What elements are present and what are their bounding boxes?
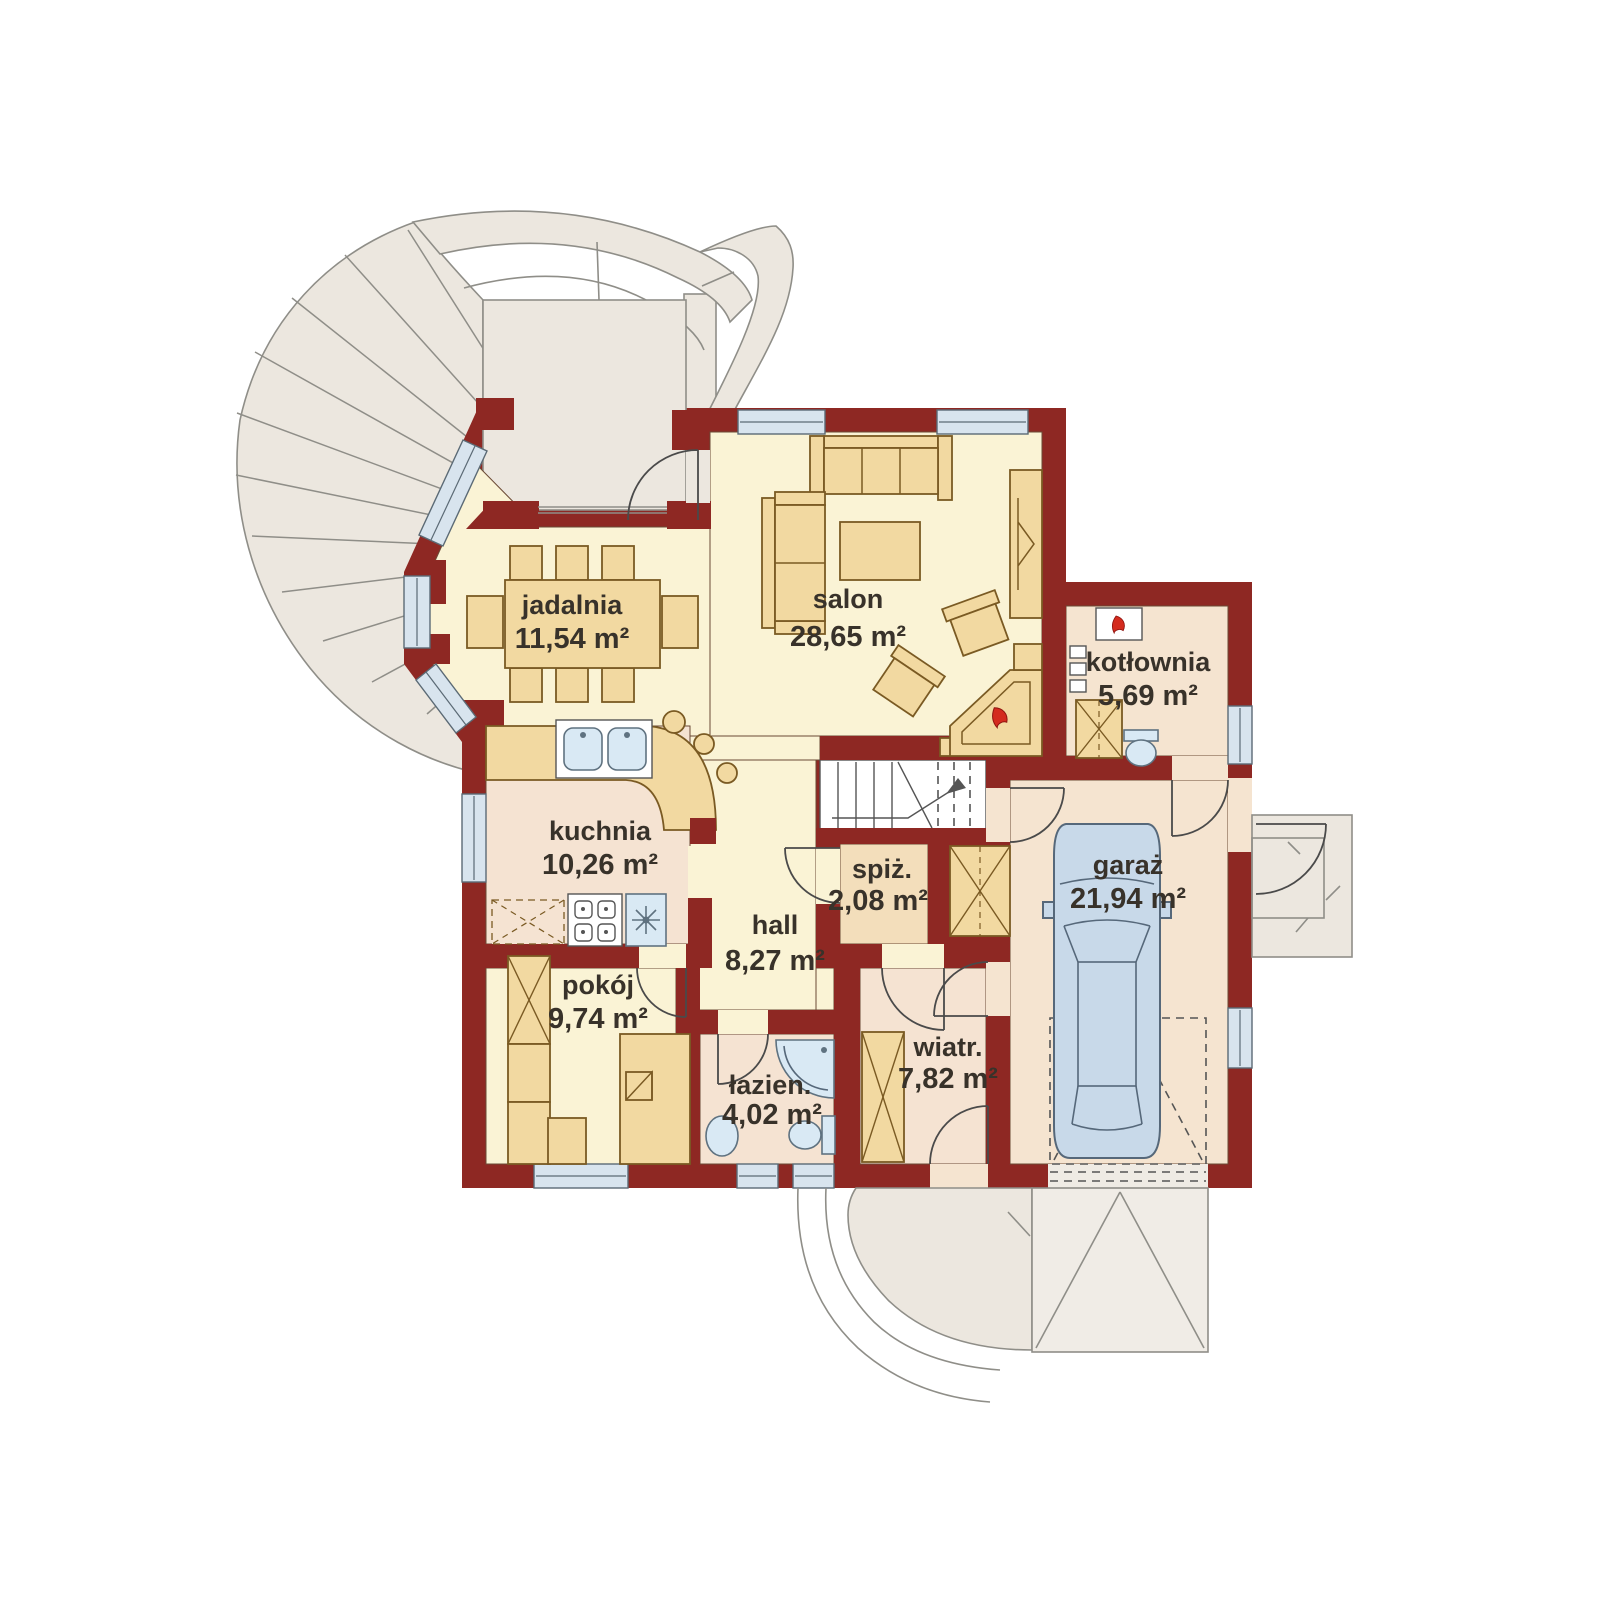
label-kotlownia: kotłownia: [1086, 647, 1211, 677]
bar-stool: [663, 711, 685, 733]
label-spiz: spiż.: [852, 854, 912, 884]
area-wiatrolap: 7,82 m²: [898, 1063, 998, 1095]
dining-chair: [510, 668, 542, 702]
kitchen-base-cabinets: [492, 894, 666, 946]
toilet-icon: [1124, 730, 1158, 766]
kitchen-sink-icon: [556, 720, 652, 778]
bed: [620, 1034, 690, 1164]
area-kotlownia: 5,69 m²: [1098, 680, 1198, 712]
dining-chair: [662, 596, 698, 648]
dining-chair: [602, 546, 634, 580]
label-lazienka: łazien.: [729, 1070, 812, 1100]
sofa-large: [810, 436, 952, 500]
area-salon: 28,65 m²: [790, 621, 906, 653]
coffee-table: [840, 522, 920, 580]
label-salon: salon: [813, 584, 884, 614]
vent-grille: [1070, 680, 1086, 692]
dining-chair: [467, 596, 503, 648]
stove-icon: [568, 894, 622, 946]
label-kuchnia: kuchnia: [549, 816, 652, 846]
extractor-fan-icon: [626, 894, 666, 946]
entrance-porch: [798, 1188, 1032, 1402]
area-hall: 8,27 m²: [725, 945, 825, 977]
chimney-hall: [950, 846, 1010, 936]
vent-grille: [1070, 646, 1086, 658]
dining-chair: [602, 668, 634, 702]
label-jadalnia: jadalnia: [521, 590, 624, 620]
floor-plan-drawing: jadalnia 11,54 m² salon 28,65 m² kotłown…: [0, 0, 1600, 1600]
cabinet: [508, 1102, 550, 1164]
vent-grille: [1070, 663, 1086, 675]
dining-chair: [556, 668, 588, 702]
label-hall: hall: [752, 910, 799, 940]
label-wiatrolap: wiatr.: [912, 1032, 982, 1062]
dining-chair: [510, 546, 542, 580]
area-pokoj: 9,74 m²: [548, 1003, 648, 1035]
area-lazienka: 4,02 m²: [722, 1099, 822, 1131]
side-porch: [1252, 815, 1352, 957]
area-kuchnia: 10,26 m²: [542, 849, 658, 881]
bar-stool: [694, 734, 714, 754]
floor-plan-page: jadalnia 11,54 m² salon 28,65 m² kotłown…: [0, 0, 1600, 1600]
area-garaz: 21,94 m²: [1070, 883, 1186, 915]
counter-end-pier: [690, 818, 716, 842]
area-spiz: 2,08 m²: [828, 885, 928, 917]
wardrobe: [508, 956, 550, 1044]
boiler-icon: [1096, 608, 1142, 640]
label-pokoj: pokój: [562, 970, 634, 1000]
cabinet: [508, 1044, 550, 1102]
bar-stool: [717, 763, 737, 783]
driveway-apron: [1032, 1188, 1208, 1352]
dining-chair: [556, 546, 588, 580]
tv-cabinet: [1010, 470, 1042, 618]
terrace-strip: [684, 294, 716, 414]
hallway-wardrobe: [862, 1032, 904, 1162]
label-garaz: garaż: [1093, 850, 1164, 880]
area-jadalnia: 11,54 m²: [515, 623, 630, 655]
desk: [548, 1118, 586, 1164]
